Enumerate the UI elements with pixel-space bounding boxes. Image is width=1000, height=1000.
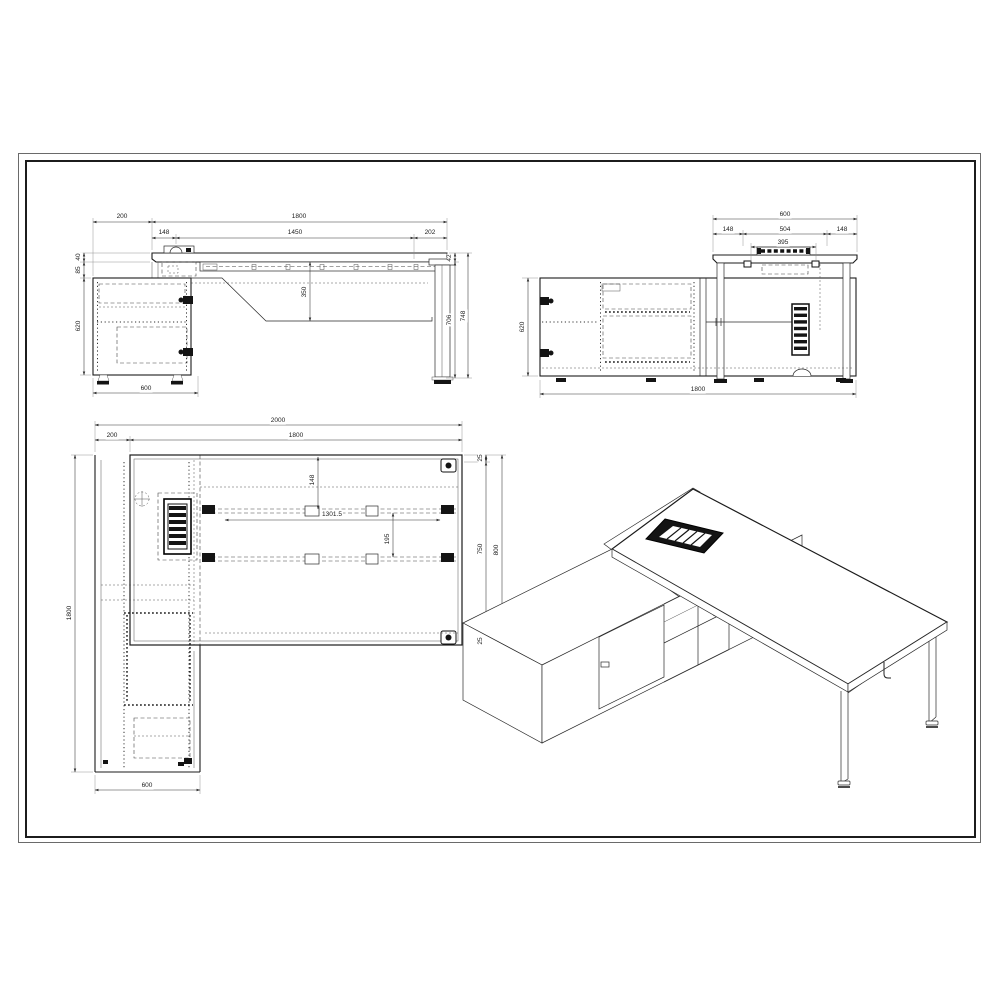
dim-plan-rail-length: 1301.5 [321, 512, 343, 519]
dim-front-seg-c: 202 [424, 230, 437, 237]
dim-side-depth: 600 [779, 212, 792, 219]
dim-front-seg-a: 148 [158, 230, 171, 237]
dim-front-top-thickness: 40 [76, 252, 83, 261]
dim-side-length: 1800 [690, 387, 706, 394]
front-elevation-view [80, 218, 472, 397]
side-elevation-view [522, 215, 857, 398]
dim-plan-return-length: 1800 [67, 605, 74, 621]
dim-side-cabinet-height: 620 [520, 321, 527, 334]
leg-plate [441, 459, 456, 472]
dim-plan-length: 1800 [288, 433, 304, 440]
dim-side-seg-a: 148 [722, 227, 735, 234]
dim-plan-inner: 750 [478, 543, 485, 556]
plan-view [71, 421, 506, 794]
dim-plan-rail-gap: 195 [385, 533, 392, 546]
dim-plan-return-depth: 600 [141, 783, 154, 790]
cable-grille [792, 304, 809, 355]
dim-front-cabinet-height: 620 [76, 320, 83, 333]
drawing-sheet: 200 1800 148 1450 202 40 85 620 350 42 7… [0, 0, 1000, 1000]
cable-box [158, 493, 197, 560]
dim-plan-inset: 148 [310, 474, 317, 487]
dim-plan-edge-top: 25 [478, 453, 485, 462]
dim-front-seg-b: 1450 [287, 230, 303, 237]
dim-front-height: 748 [461, 310, 468, 323]
dim-front-clearance: 706 [447, 314, 454, 327]
dim-front-length: 1800 [291, 214, 307, 221]
dim-plan-edge-bottom: 25 [478, 636, 485, 645]
dim-front-cabinet-depth: 600 [140, 386, 153, 393]
dim-front-tray-drop: 350 [302, 286, 309, 299]
dim-front-edge: 42 [447, 253, 454, 262]
dim-side-seg-c: 148 [836, 227, 849, 234]
isometric-view [463, 488, 947, 787]
dim-plan-offset: 200 [106, 433, 119, 440]
dim-side-tray: 395 [777, 240, 790, 247]
door-handle [601, 662, 609, 667]
dim-plan-overall: 2000 [270, 418, 286, 425]
dim-plan-depth: 800 [494, 544, 501, 557]
technical-drawing-canvas [0, 0, 1000, 1000]
dim-front-gap: 85 [76, 265, 83, 274]
dim-front-offset: 200 [116, 214, 129, 221]
dim-side-seg-b: 504 [779, 227, 792, 234]
